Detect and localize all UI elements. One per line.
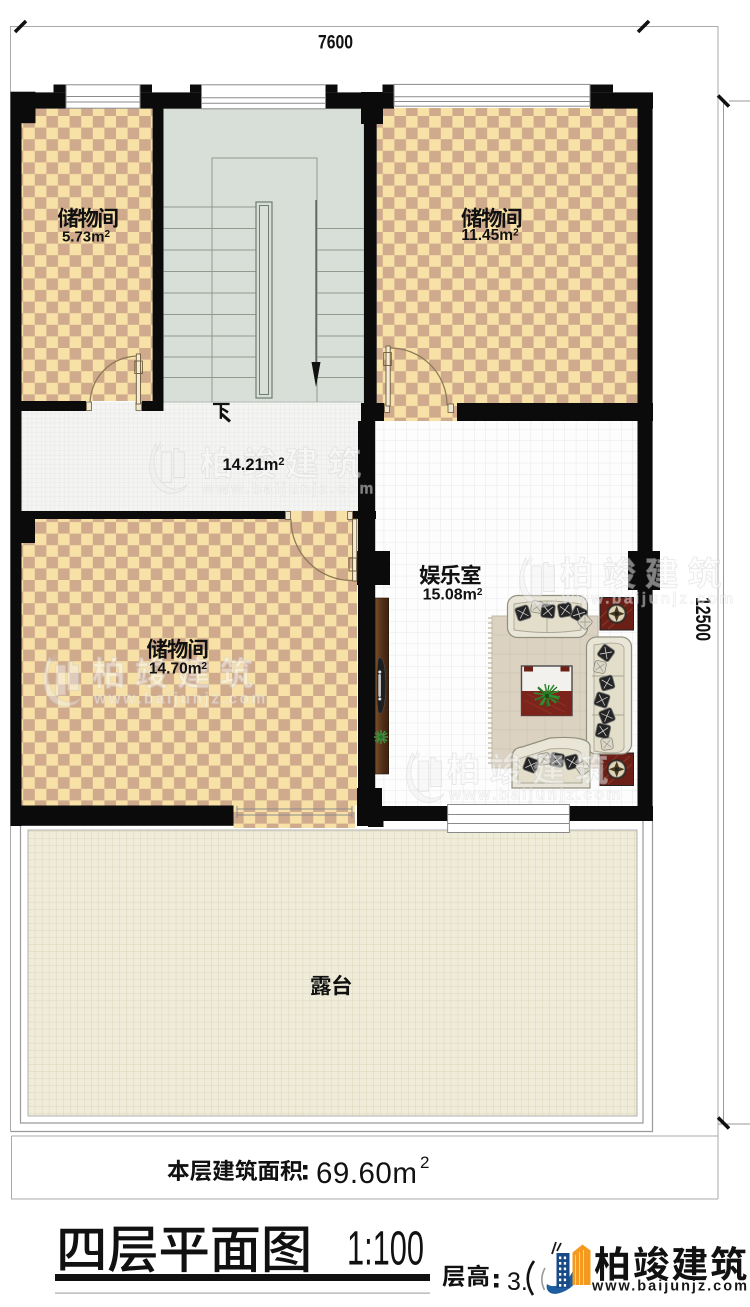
svg-text:3.: 3. bbox=[507, 1268, 528, 1296]
svg-text:14.70m2: 14.70m2 bbox=[149, 661, 208, 678]
svg-text:69.60m: 69.60m bbox=[316, 1157, 417, 1190]
svg-text:5.73m2: 5.73m2 bbox=[62, 229, 111, 246]
svg-text:www.baijunjz.com: www.baijunjz.com bbox=[201, 481, 376, 498]
svg-text:11.45m2: 11.45m2 bbox=[461, 227, 519, 244]
svg-text:www.baijunjz.com: www.baijunjz.com bbox=[561, 591, 736, 608]
svg-text:14.21m2: 14.21m2 bbox=[222, 456, 284, 474]
svg-text:2: 2 bbox=[420, 1153, 429, 1172]
svg-text:1:100: 1:100 bbox=[347, 1223, 424, 1276]
svg-text:www.baijunjz.com: www.baijunjz.com bbox=[93, 691, 268, 708]
svg-text:7600: 7600 bbox=[318, 32, 353, 54]
svg-text:15.08m2: 15.08m2 bbox=[423, 587, 483, 604]
svg-text:www.baijunjz.com: www.baijunjz.com bbox=[591, 1279, 747, 1295]
svg-text:www.baijunjz.com: www.baijunjz.com bbox=[448, 787, 623, 804]
